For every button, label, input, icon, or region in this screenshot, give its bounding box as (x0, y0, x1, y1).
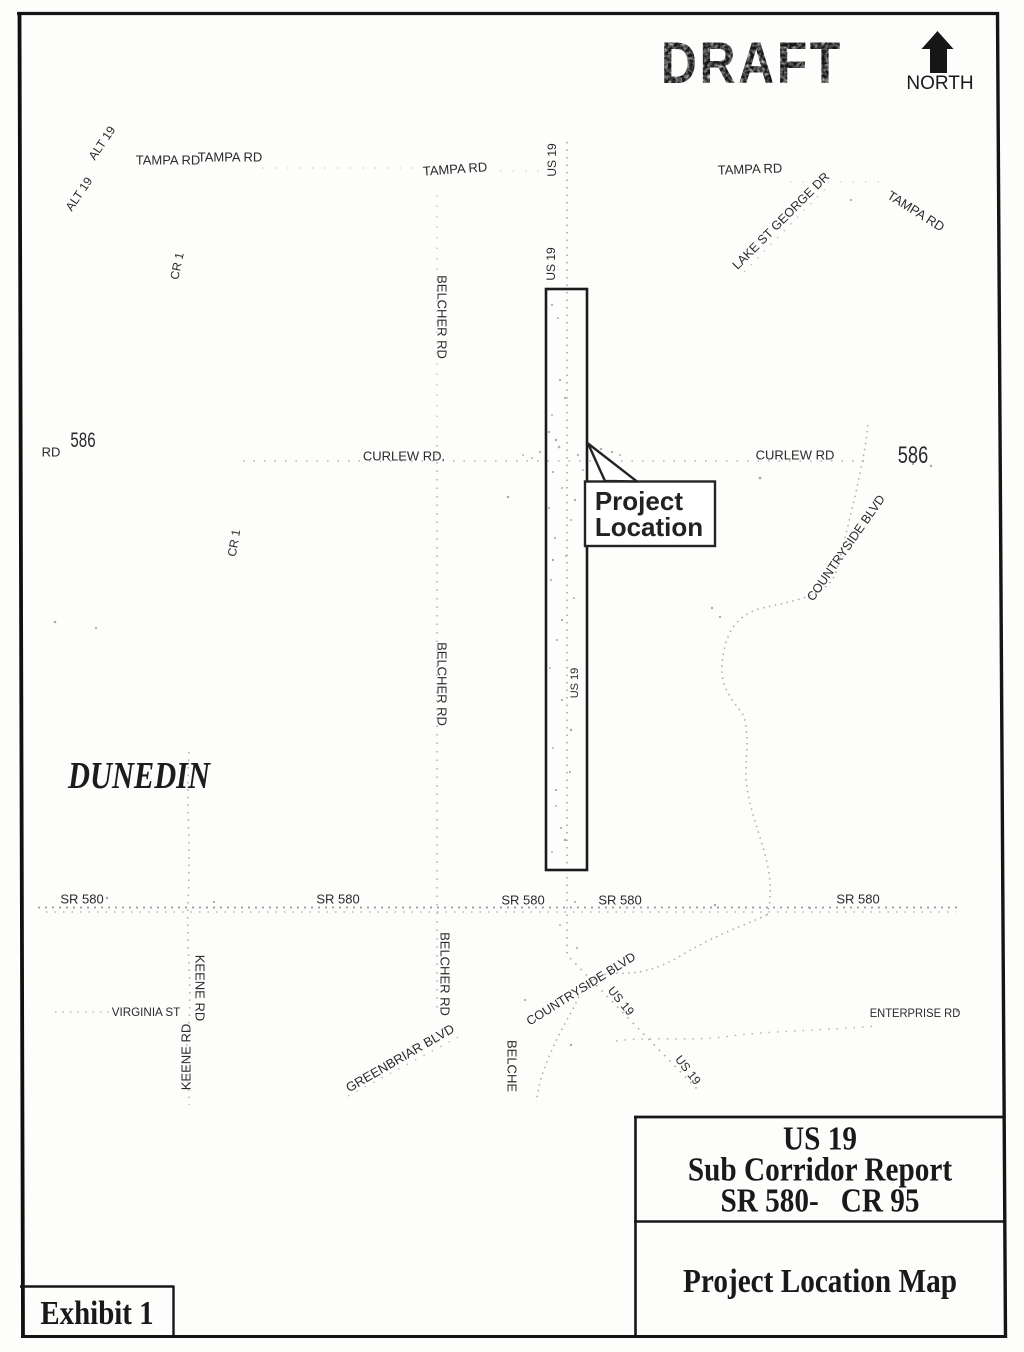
svg-text:DRAFT: DRAFT (661, 32, 843, 96)
